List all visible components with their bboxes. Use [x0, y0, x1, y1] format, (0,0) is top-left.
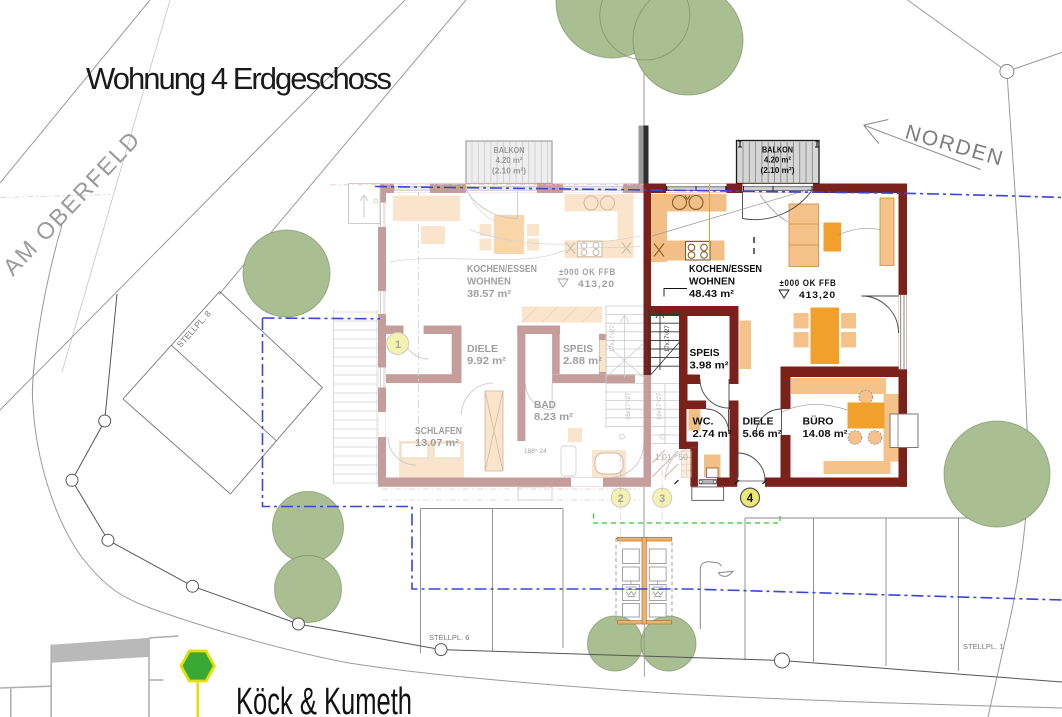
svg-text:5.66 m²: 5.66 m² [743, 428, 783, 440]
svg-text:38.57 m²: 38.57 m² [467, 288, 512, 300]
svg-text:Köck & Kumeth: Köck & Kumeth [236, 681, 412, 717]
svg-text:13.07 m²: 13.07 m² [415, 437, 460, 449]
svg-text:KOCHEN/ESSEN: KOCHEN/ESSEN [467, 263, 537, 275]
svg-text:(2.10 m²): (2.10 m²) [761, 165, 795, 175]
svg-text:Wohnung 4 Erdgeschoss: Wohnung 4 Erdgeschoss [86, 61, 392, 96]
svg-text:BÜRO: BÜRO [803, 415, 834, 428]
svg-text:188⁵ 24: 188⁵ 24 [524, 448, 547, 455]
svg-text:SCHLAFEN: SCHLAFEN [415, 425, 462, 437]
svg-text:9.92 m²: 9.92 m² [467, 355, 507, 367]
svg-text:WOHNEN: WOHNEN [689, 276, 735, 288]
svg-text:±000 OK FFB: ±000 OK FFB [559, 267, 616, 278]
svg-text:STELLPL. 1: STELLPL. 1 [963, 642, 1003, 651]
svg-text:SPEIS: SPEIS [690, 347, 720, 359]
svg-text:2.88 m²: 2.88 m² [563, 355, 603, 367]
svg-text:17x17¹/27: 17x17¹/27 [610, 325, 616, 352]
svg-text:413,20: 413,20 [578, 279, 615, 290]
svg-text:BALKON: BALKON [762, 145, 793, 155]
svg-text:4: 4 [747, 493, 754, 505]
svg-text:3.98 m²: 3.98 m² [690, 360, 730, 372]
svg-text:14.08 m²: 14.08 m² [803, 428, 849, 440]
svg-text:2.74 m²: 2.74 m² [693, 428, 733, 440]
svg-text:WC.: WC. [693, 416, 714, 428]
svg-text:DIELE: DIELE [467, 343, 498, 355]
svg-text:1: 1 [395, 339, 401, 351]
svg-text:±000 OK FFB: ±000 OK FFB [780, 278, 837, 289]
svg-text:SPEIS: SPEIS [563, 343, 593, 355]
svg-text:KOCHEN/ESSEN: KOCHEN/ESSEN [689, 263, 762, 275]
svg-text:17x17¹/27: 17x17¹/27 [665, 325, 671, 352]
svg-text:WOHNEN: WOHNEN [467, 276, 511, 288]
svg-text:DIELE: DIELE [743, 416, 774, 428]
svg-text:(2.10 m²): (2.10 m²) [492, 166, 526, 176]
svg-text:4.20 m²: 4.20 m² [496, 155, 523, 165]
svg-text:413,20: 413,20 [799, 290, 836, 301]
svg-text:STELLPL. 6: STELLPL. 6 [429, 633, 469, 642]
svg-text:4.20 m²: 4.20 m² [764, 155, 791, 165]
svg-text:8.23 m²: 8.23 m² [534, 411, 574, 423]
svg-text:16x17⁹/27: 16x17⁹/27 [625, 392, 632, 420]
svg-text:16x17⁹/27: 16x17⁹/27 [656, 392, 663, 420]
svg-text:BAD: BAD [534, 399, 556, 411]
svg-text:48.43 m²: 48.43 m² [689, 288, 735, 300]
svg-text:BALKON: BALKON [494, 145, 525, 155]
